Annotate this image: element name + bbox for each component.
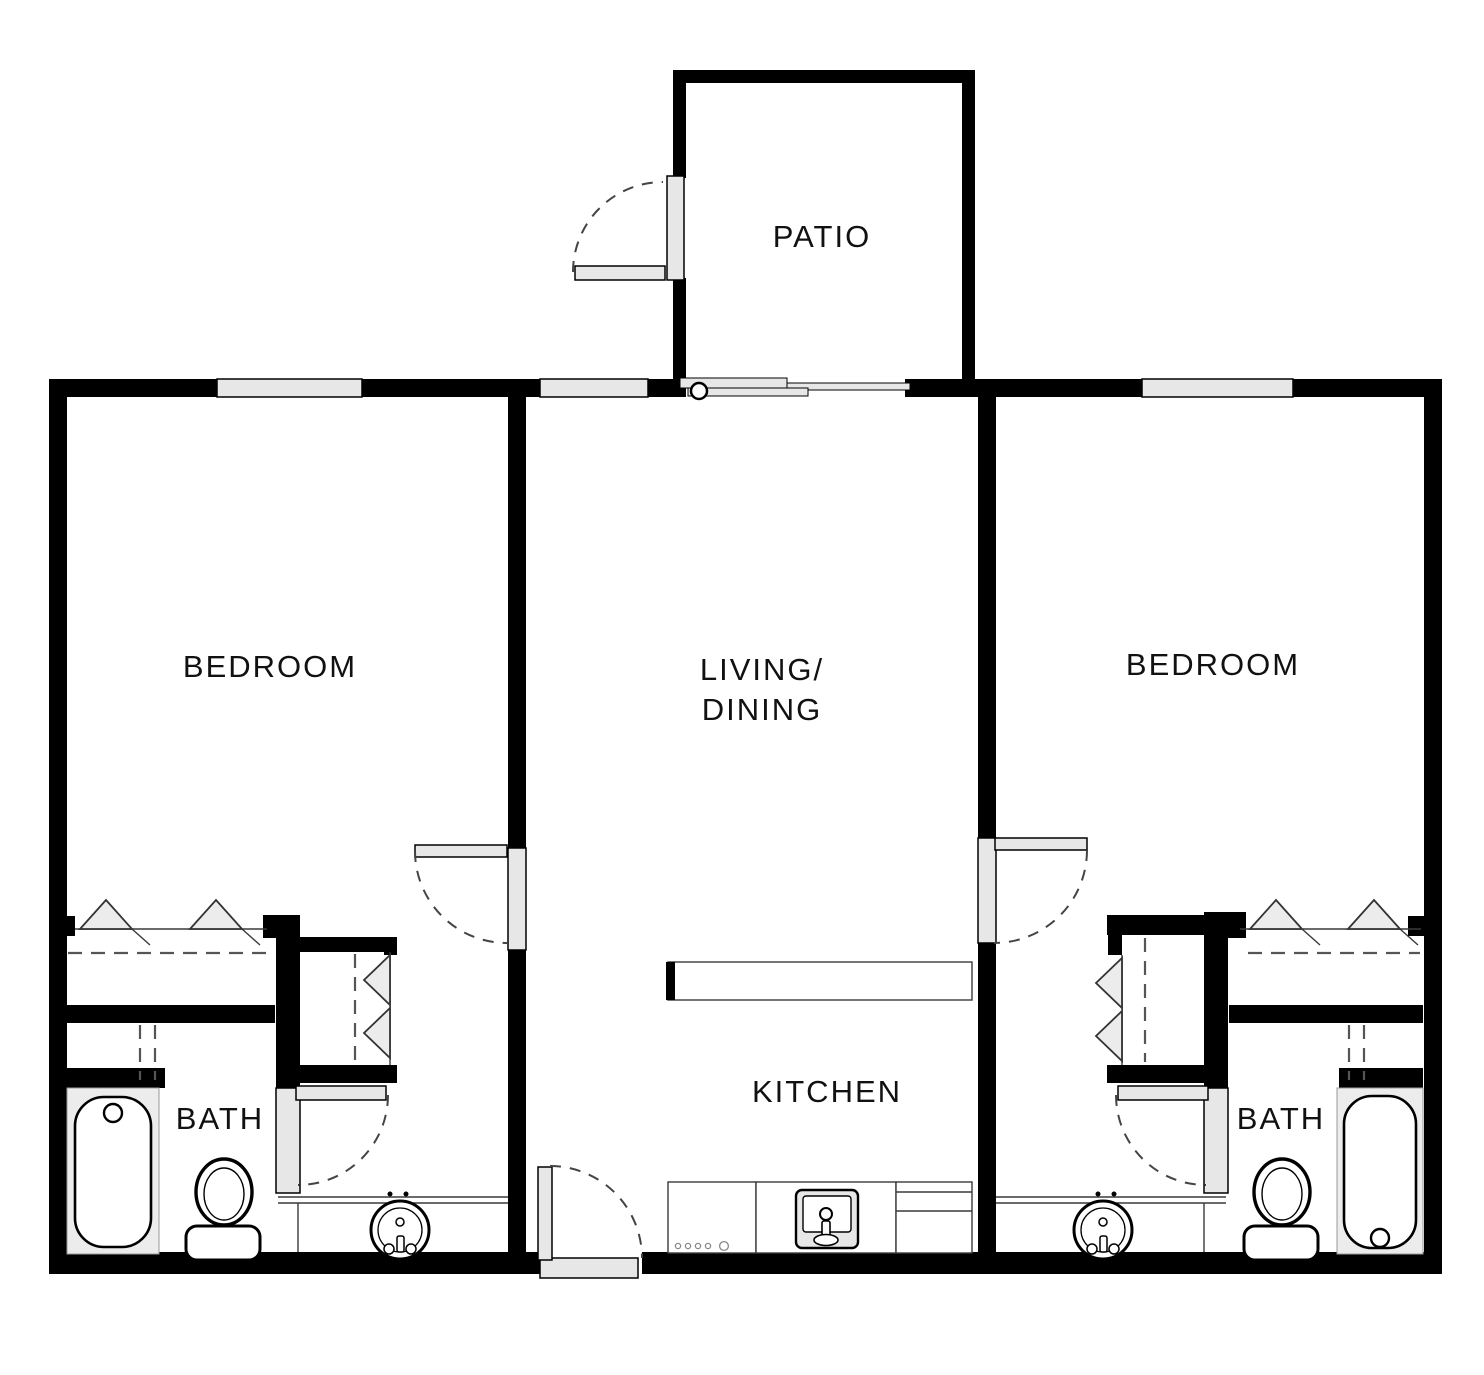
toilet-left <box>186 1159 260 1260</box>
bedroom-right-door-swing-arc <box>994 850 1087 943</box>
living-dining-label-line2: DINING <box>702 692 823 727</box>
tub-faucet <box>1371 1229 1389 1247</box>
entry-door-swing-arc <box>550 1166 642 1258</box>
bath-left-door-swing-arc <box>298 1095 388 1185</box>
entry-door-leaf <box>538 1167 552 1260</box>
breakfast-bar <box>666 962 972 1000</box>
bedroom-left-door <box>415 845 526 950</box>
bath-left-label: BATH <box>176 1101 264 1136</box>
kitchen-label: KITCHEN <box>752 1074 902 1109</box>
patio-door-swing-arc <box>573 182 663 272</box>
bathtub-right <box>1337 1088 1423 1254</box>
interior-walls-right <box>1107 912 1424 1088</box>
bath-right-door-jamb <box>1204 1088 1228 1193</box>
vanity-left <box>278 1192 508 1260</box>
window-bedroom-right <box>1142 379 1293 397</box>
patio-door-jamb <box>667 176 684 280</box>
window-bedroom-left <box>217 379 362 397</box>
bath-right-label: BATH <box>1237 1101 1325 1136</box>
bedroom-right-label: BEDROOM <box>1126 647 1300 682</box>
vanity-sink-right <box>1074 1201 1132 1259</box>
sliding-patio-door <box>680 378 910 399</box>
bath-left-door <box>276 1086 388 1193</box>
hall-closet-right <box>1096 938 1145 1065</box>
bath-right-door-swing-arc <box>1116 1095 1206 1185</box>
vanity-right <box>996 1192 1226 1260</box>
bathtub-left <box>67 1088 159 1254</box>
sliding-door-pull <box>691 383 707 399</box>
toilet-right <box>1244 1159 1318 1260</box>
patio-label: PATIO <box>773 219 871 254</box>
divider-wall-left <box>508 397 526 1252</box>
bedroom-closet-left <box>68 900 275 953</box>
interior-walls-left <box>49 915 397 1088</box>
vanity-sink-left <box>371 1201 429 1259</box>
bath-left-door-leaf <box>296 1086 386 1100</box>
bath-right-door <box>1116 1086 1228 1193</box>
patio-door-leaf <box>575 266 665 280</box>
divider-wall-right <box>978 397 996 1252</box>
entry-threshold <box>540 1258 638 1278</box>
bedroom-left-label: BEDROOM <box>183 649 357 684</box>
bedroom-right-door-leaf <box>995 838 1087 850</box>
kitchen-counters <box>668 1182 972 1253</box>
patio-door <box>573 176 684 280</box>
bedroom-right-door-jamb <box>978 838 996 943</box>
entry-door <box>538 1166 642 1278</box>
kitchen-sink <box>796 1190 858 1248</box>
living-dining-label-line1: LIVING/ <box>700 652 824 687</box>
bedroom-closet-right <box>1240 900 1421 953</box>
bedroom-left-door-leaf <box>415 845 507 857</box>
bedroom-left-door-swing-arc <box>415 851 507 943</box>
bath-right-door-leaf <box>1118 1086 1208 1100</box>
bath-left-door-jamb <box>276 1088 300 1193</box>
window-living <box>540 379 648 397</box>
hall-closet-left <box>355 952 390 1065</box>
tub-faucet <box>104 1104 122 1122</box>
range <box>668 1182 756 1253</box>
bedroom-left-door-jamb <box>508 848 526 950</box>
floor-plan: PATIO BEDROOM LIVING/ DINING BEDROOM KIT… <box>0 0 1484 1375</box>
outer-walls <box>49 379 1442 1274</box>
bedroom-right-door <box>978 838 1087 943</box>
